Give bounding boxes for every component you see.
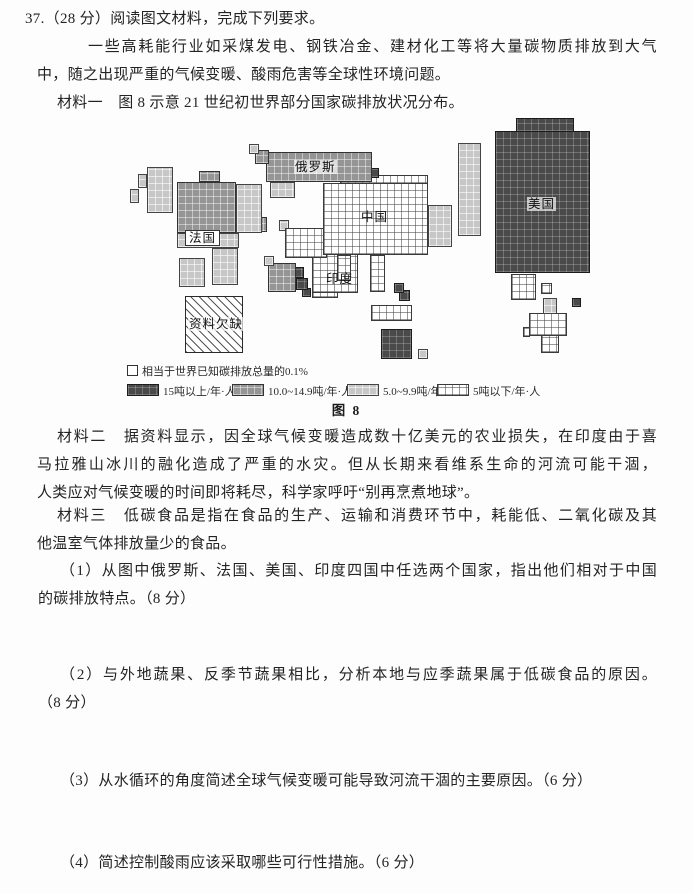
- legend-item-cat1: 15吨以上/年·人: [127, 384, 236, 399]
- map-block-spain: [179, 258, 205, 287]
- map-block-china-right: [428, 205, 452, 247]
- map-block-centralasia: [285, 228, 327, 258]
- subquestion-2-line-2: （8 分）: [38, 693, 96, 713]
- map-block-japan: [458, 143, 481, 236]
- map-block-carib-sq: [541, 283, 552, 294]
- legend-item-cat4: 5吨以下/年·人: [437, 384, 540, 399]
- material2-line-2: 马拉雅山冰川的融化造成了严重的水灾。但从长期来看维系生命的河流可能干涸，: [37, 455, 657, 475]
- map-block-korea-1: [394, 283, 404, 293]
- map-block-france-notch: [199, 171, 220, 182]
- legend-unit-note: 相当于世界已知碳排放总量的0.1%: [142, 366, 308, 378]
- map-label-india: 印度: [326, 272, 353, 286]
- subquestion-3-line: （3）从水循环的角度简述全球气候变暖可能导致河流干涸的主要原因。（6 分）: [60, 771, 592, 791]
- map-block-france-main: [177, 182, 236, 233]
- legend-swatch-cat1-icon: [127, 384, 159, 396]
- subquestion-4-line: （4）简述控制酸雨应该采取哪些可行性措施。（6 分）: [60, 853, 424, 873]
- figure-map: 俄罗斯 中国 法国 印度 美国 资料欠缺: [0, 0, 693, 430]
- map-block-russia-sw: [270, 182, 295, 198]
- legend-swatch-cat2-icon: [232, 384, 264, 396]
- map-block-indonesia: [371, 305, 412, 321]
- map-label-france: 法国: [185, 230, 220, 246]
- legend-label-cat4: 5吨以下/年·人: [473, 386, 540, 398]
- map-label-no-data: 资料欠缺: [188, 317, 244, 331]
- subquestion-1-line-1: （1）从图中俄罗斯、法国、美国、印度四国中任选两个国家，指出他们相对于中国: [60, 561, 657, 581]
- legend-swatch-cat4-icon: [437, 384, 469, 396]
- map-block-nz-sq: [418, 349, 428, 359]
- material2-line-1: 材料二 据资料显示，因全球气候变暖造成数十亿美元的农业损失，在印度由于喜: [57, 427, 657, 447]
- map-block-europe-right: [236, 184, 262, 233]
- map-block-uk-w1: [138, 174, 147, 188]
- map-block-mideast-sq: [264, 256, 274, 266]
- exam-page: 37.（28 分）阅读图文材料，完成下列要求。 一些高耗能行业如采煤发电、钢铁冶…: [0, 0, 693, 894]
- map-block-mideast-main: [268, 263, 296, 292]
- map-label-china: 中国: [361, 210, 388, 224]
- legend-item-cat2: 10.0~14.9吨/年·人: [232, 384, 352, 399]
- subquestion-1-line-2: 的碳排放特点。（8 分）: [38, 589, 195, 609]
- subquestion-2-line-1: （2）与外地蔬果、反季节蔬果相比，分析本地与应季蔬果属于低碳食品的原因。: [60, 665, 657, 685]
- map-block-russia-nw1: [249, 144, 259, 154]
- material3-line-1: 材料三 低碳食品是指在食品的生产、运输和消费环节中，耗能低、二氧化碳及其: [57, 506, 657, 526]
- map-block-mideast-d2: [296, 278, 308, 290]
- material2-line-3: 人类应对气候变暖的时间即将耗尽，科学家呼吁“别再烹煮地球”。: [37, 483, 479, 503]
- map-block-sa-bottom: [541, 335, 559, 353]
- legend-swatch-cat3-icon: [347, 384, 379, 396]
- map-label-russia: 俄罗斯: [294, 160, 337, 174]
- map-block-china-strip2: [370, 255, 385, 292]
- map-block-mexico: [511, 274, 536, 300]
- map-label-usa: 美国: [527, 197, 556, 211]
- map-block-usa-notch: [516, 118, 574, 132]
- figure-caption: 图 8: [0, 399, 693, 419]
- map-block-australia: [381, 329, 412, 359]
- map-block-sa-top: [543, 298, 557, 314]
- map-block-carib-dark: [572, 298, 581, 307]
- map-block-italy: [212, 248, 238, 285]
- map-block-sa-main: [529, 313, 567, 336]
- material3-line-2: 他温室气体排放量少的食品。: [37, 534, 236, 554]
- legend-label-cat2: 10.0~14.9吨/年·人: [268, 386, 352, 398]
- legend-unit-row: 相当于世界已知碳排放总量的0.1%: [127, 365, 308, 379]
- map-block-uk-w2: [130, 189, 139, 203]
- map-block-uk-main: [147, 167, 173, 213]
- legend-label-cat1: 15吨以上/年·人: [163, 386, 236, 398]
- legend-unit-square-icon: [127, 365, 138, 376]
